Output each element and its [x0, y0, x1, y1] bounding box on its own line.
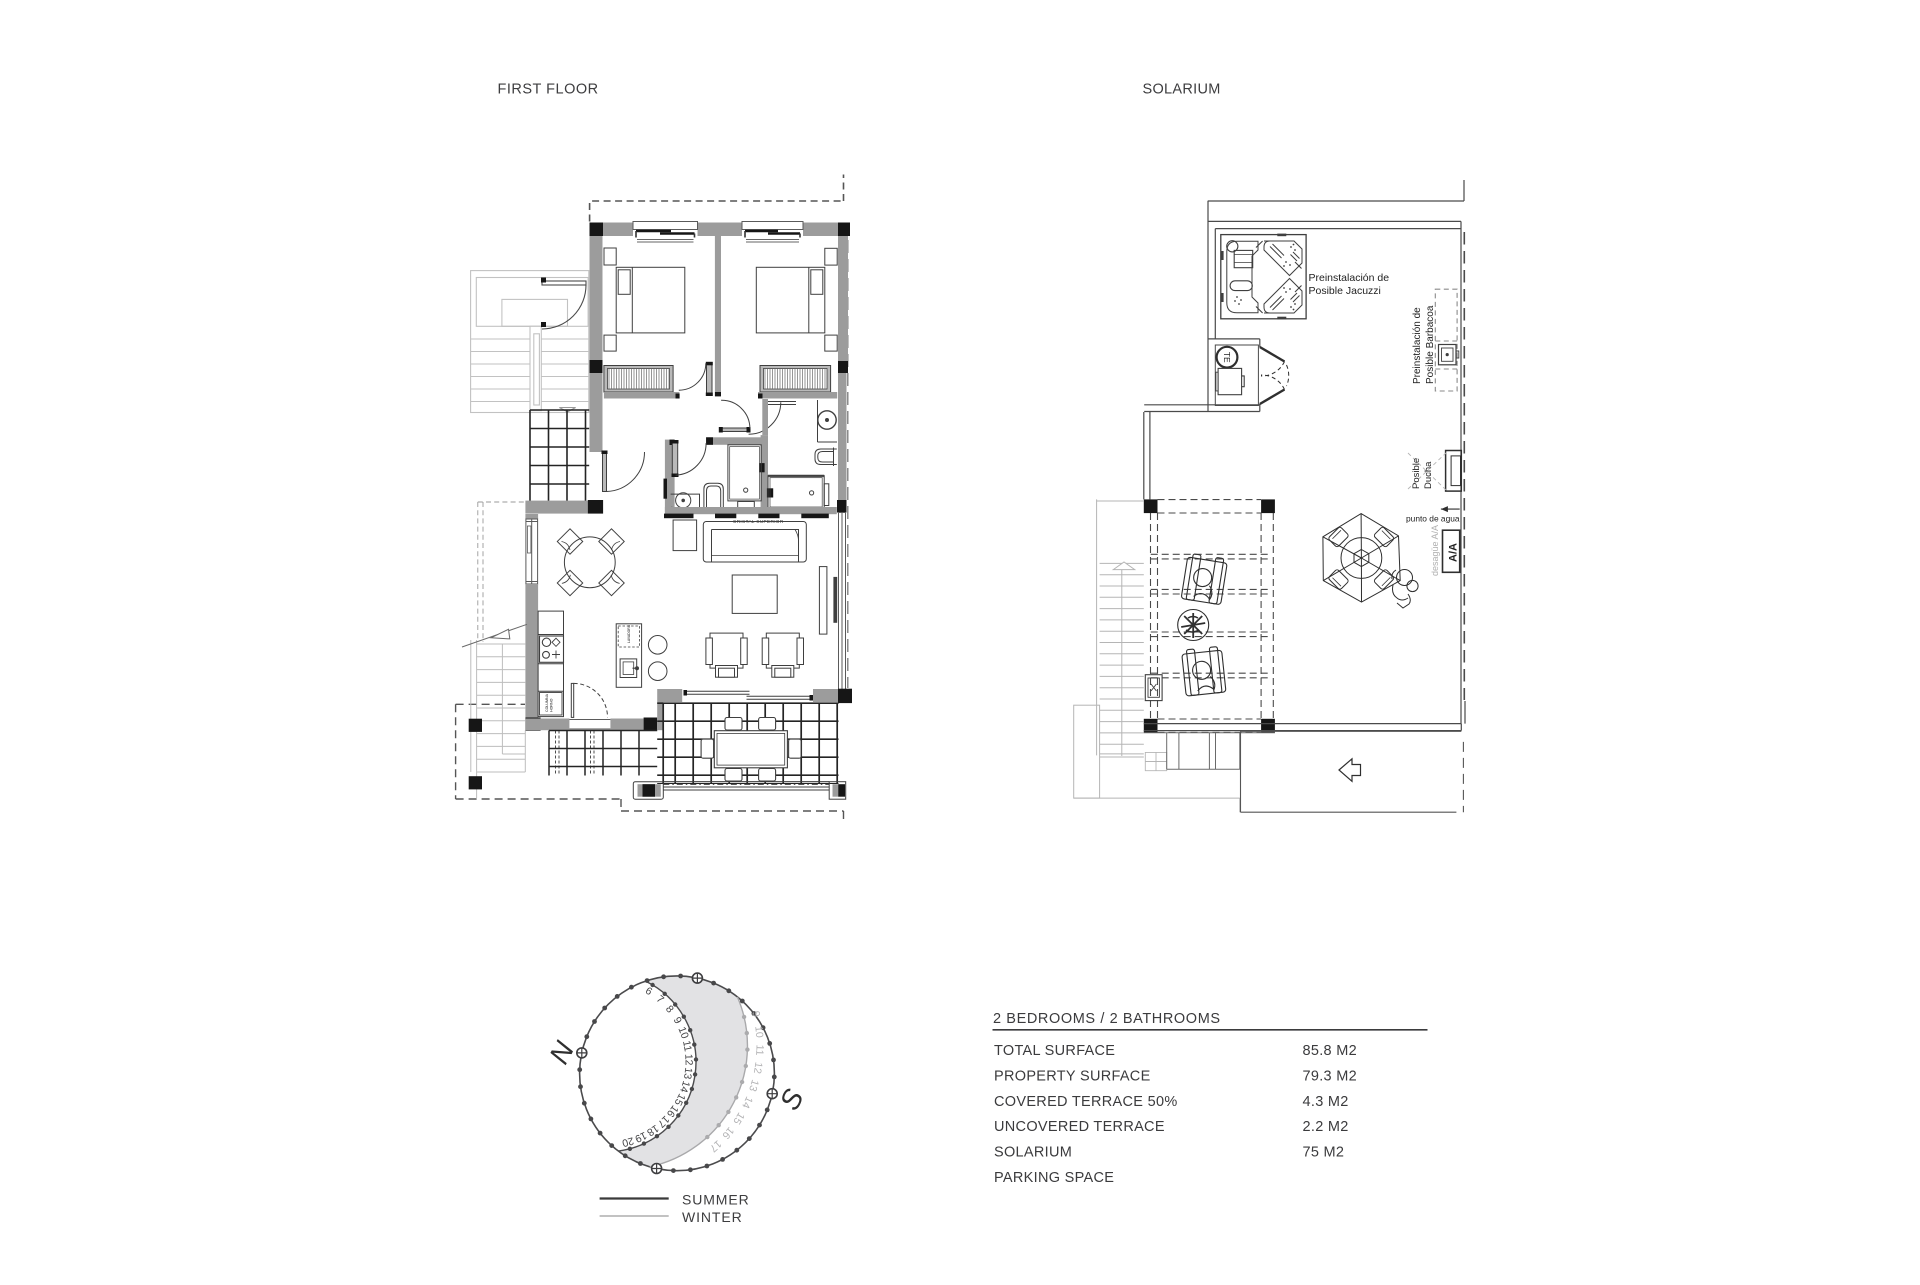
- svg-text:2.2 M2: 2.2 M2: [1303, 1119, 1349, 1135]
- svg-text:Posible: Posible: [1411, 458, 1422, 489]
- svg-text:79.3 M2: 79.3 M2: [1303, 1068, 1358, 1084]
- svg-text:13: 13: [681, 1067, 695, 1080]
- svg-text:punto de agua: punto de agua: [1406, 514, 1460, 524]
- svg-text:85.8 M2: 85.8 M2: [1303, 1043, 1358, 1059]
- svg-text:HORNO: HORNO: [550, 698, 554, 712]
- svg-text:SOLARIUM: SOLARIUM: [994, 1145, 1072, 1161]
- svg-text:12: 12: [682, 1054, 694, 1066]
- svg-text:TE: TE: [1222, 352, 1232, 363]
- svg-text:Ducha: Ducha: [1423, 461, 1434, 489]
- svg-text:SOLARIUM: SOLARIUM: [1143, 82, 1221, 98]
- svg-text:12: 12: [751, 1061, 765, 1075]
- svg-text:desagüe A/A: desagüe A/A: [1430, 525, 1440, 576]
- svg-text:A/A: A/A: [1448, 543, 1460, 562]
- svg-text:11: 11: [753, 1044, 765, 1055]
- svg-text:LAVADORA: LAVADORA: [627, 624, 631, 643]
- svg-text:2 BEDROOMS / 2 BATHROOMS: 2 BEDROOMS / 2 BATHROOMS: [993, 1011, 1221, 1027]
- svg-text:TOTAL SURFACE: TOTAL SURFACE: [994, 1043, 1115, 1059]
- svg-text:Preinstalación de: Preinstalación de: [1412, 307, 1423, 384]
- svg-text:UNCOVERED TERRACE: UNCOVERED TERRACE: [994, 1119, 1165, 1135]
- svg-text:4.3 M2: 4.3 M2: [1303, 1094, 1349, 1110]
- svg-text:PROPERTY SURFACE: PROPERTY SURFACE: [994, 1068, 1151, 1084]
- svg-text:PARKING SPACE: PARKING SPACE: [994, 1170, 1114, 1186]
- svg-text:75 M2: 75 M2: [1303, 1145, 1345, 1161]
- svg-text:Posible Barbacoa: Posible Barbacoa: [1425, 305, 1436, 384]
- svg-text:FIRST FLOOR: FIRST FLOOR: [498, 82, 599, 98]
- svg-text:COLUMNA: COLUMNA: [545, 693, 549, 712]
- svg-text:Preinstalación de: Preinstalación de: [1309, 272, 1390, 284]
- svg-text:WINTER: WINTER: [682, 1209, 743, 1225]
- svg-text:Posible Jacuzzi: Posible Jacuzzi: [1309, 285, 1381, 297]
- svg-text:10: 10: [752, 1025, 765, 1038]
- svg-text:COVERED TERRACE 50%: COVERED TERRACE 50%: [994, 1094, 1178, 1110]
- svg-text:SUMMER: SUMMER: [682, 1192, 750, 1208]
